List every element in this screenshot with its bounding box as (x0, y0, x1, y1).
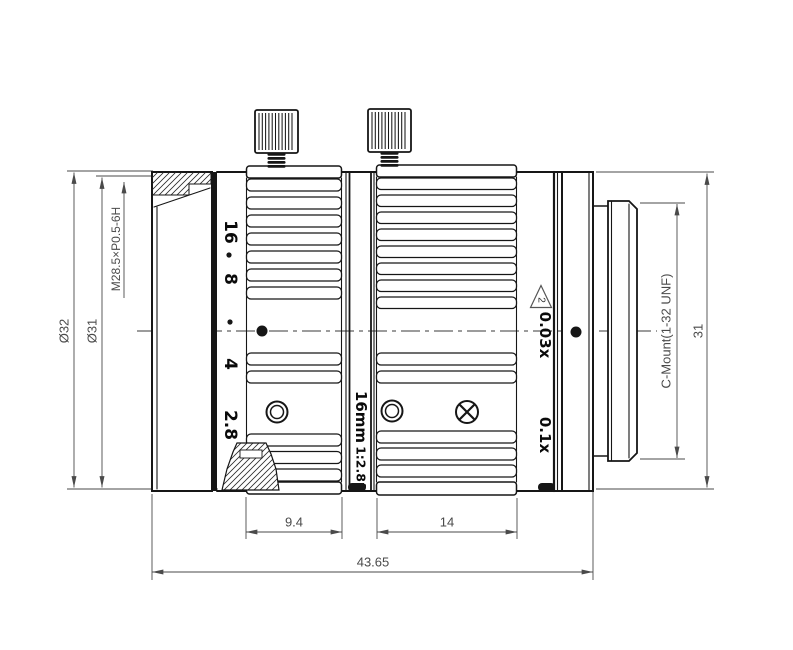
note-number: 2 (536, 297, 547, 303)
aperture-scale-dot (226, 252, 231, 257)
lens-technical-drawing: Ø32 Ø31 M28.5×P0.5-6H 9.4 14 43.65 C-Mou… (0, 0, 793, 650)
aperture-mark-16: 16 (220, 220, 240, 244)
dim-4365-label: 43.65 (357, 555, 390, 570)
front-groove-band (211, 172, 217, 491)
aperture-ring-screw-hole (267, 402, 288, 423)
screw-thread-neck (268, 153, 286, 168)
aperture-lock-thumbscrew (255, 110, 298, 168)
seal-section-mark (348, 483, 366, 492)
dim-dia32-label: Ø32 (57, 319, 72, 344)
max-magnification-marking: 0.1x (536, 417, 554, 454)
flange-index-dot (571, 327, 582, 338)
aperture-index-dot (257, 326, 268, 337)
fnumber-marking: 1:2.8 (354, 446, 369, 482)
min-magnification-marking: 0.03x (536, 312, 554, 359)
rear-fixed-barrel: 2 0.03x 0.1x (517, 172, 562, 492)
focal-length-marking: 16mm (352, 391, 370, 443)
mount-flange (562, 172, 593, 491)
front-thread-label: M28.5×P0.5-6H (109, 207, 123, 291)
aperture-scale-dot (227, 319, 232, 324)
middle-fixed-band: 16mm 1:2.8 f (342, 172, 376, 492)
seal-section-mark (538, 483, 555, 492)
screw-thread-neck (381, 152, 399, 167)
dim-94-label: 9.4 (285, 515, 303, 530)
cmount-label: C-Mount(1-32 UNF) (659, 274, 674, 389)
front-lug-section (222, 443, 279, 490)
dim-31-label: 31 (691, 324, 706, 338)
dim-dia31-label: Ø31 (85, 319, 100, 344)
front-barrel (152, 172, 217, 491)
focus-ring (377, 165, 517, 495)
aperture-mark-28: 2.8 (220, 410, 240, 440)
dim-14-label: 14 (440, 515, 454, 530)
focus-ring-set-screw (456, 401, 478, 423)
focus-lock-thumbscrew (368, 109, 411, 167)
aperture-mark-4: 4 (220, 358, 240, 370)
aperture-mark-8: 8 (220, 273, 240, 285)
focus-ring-screw-hole (382, 401, 403, 422)
